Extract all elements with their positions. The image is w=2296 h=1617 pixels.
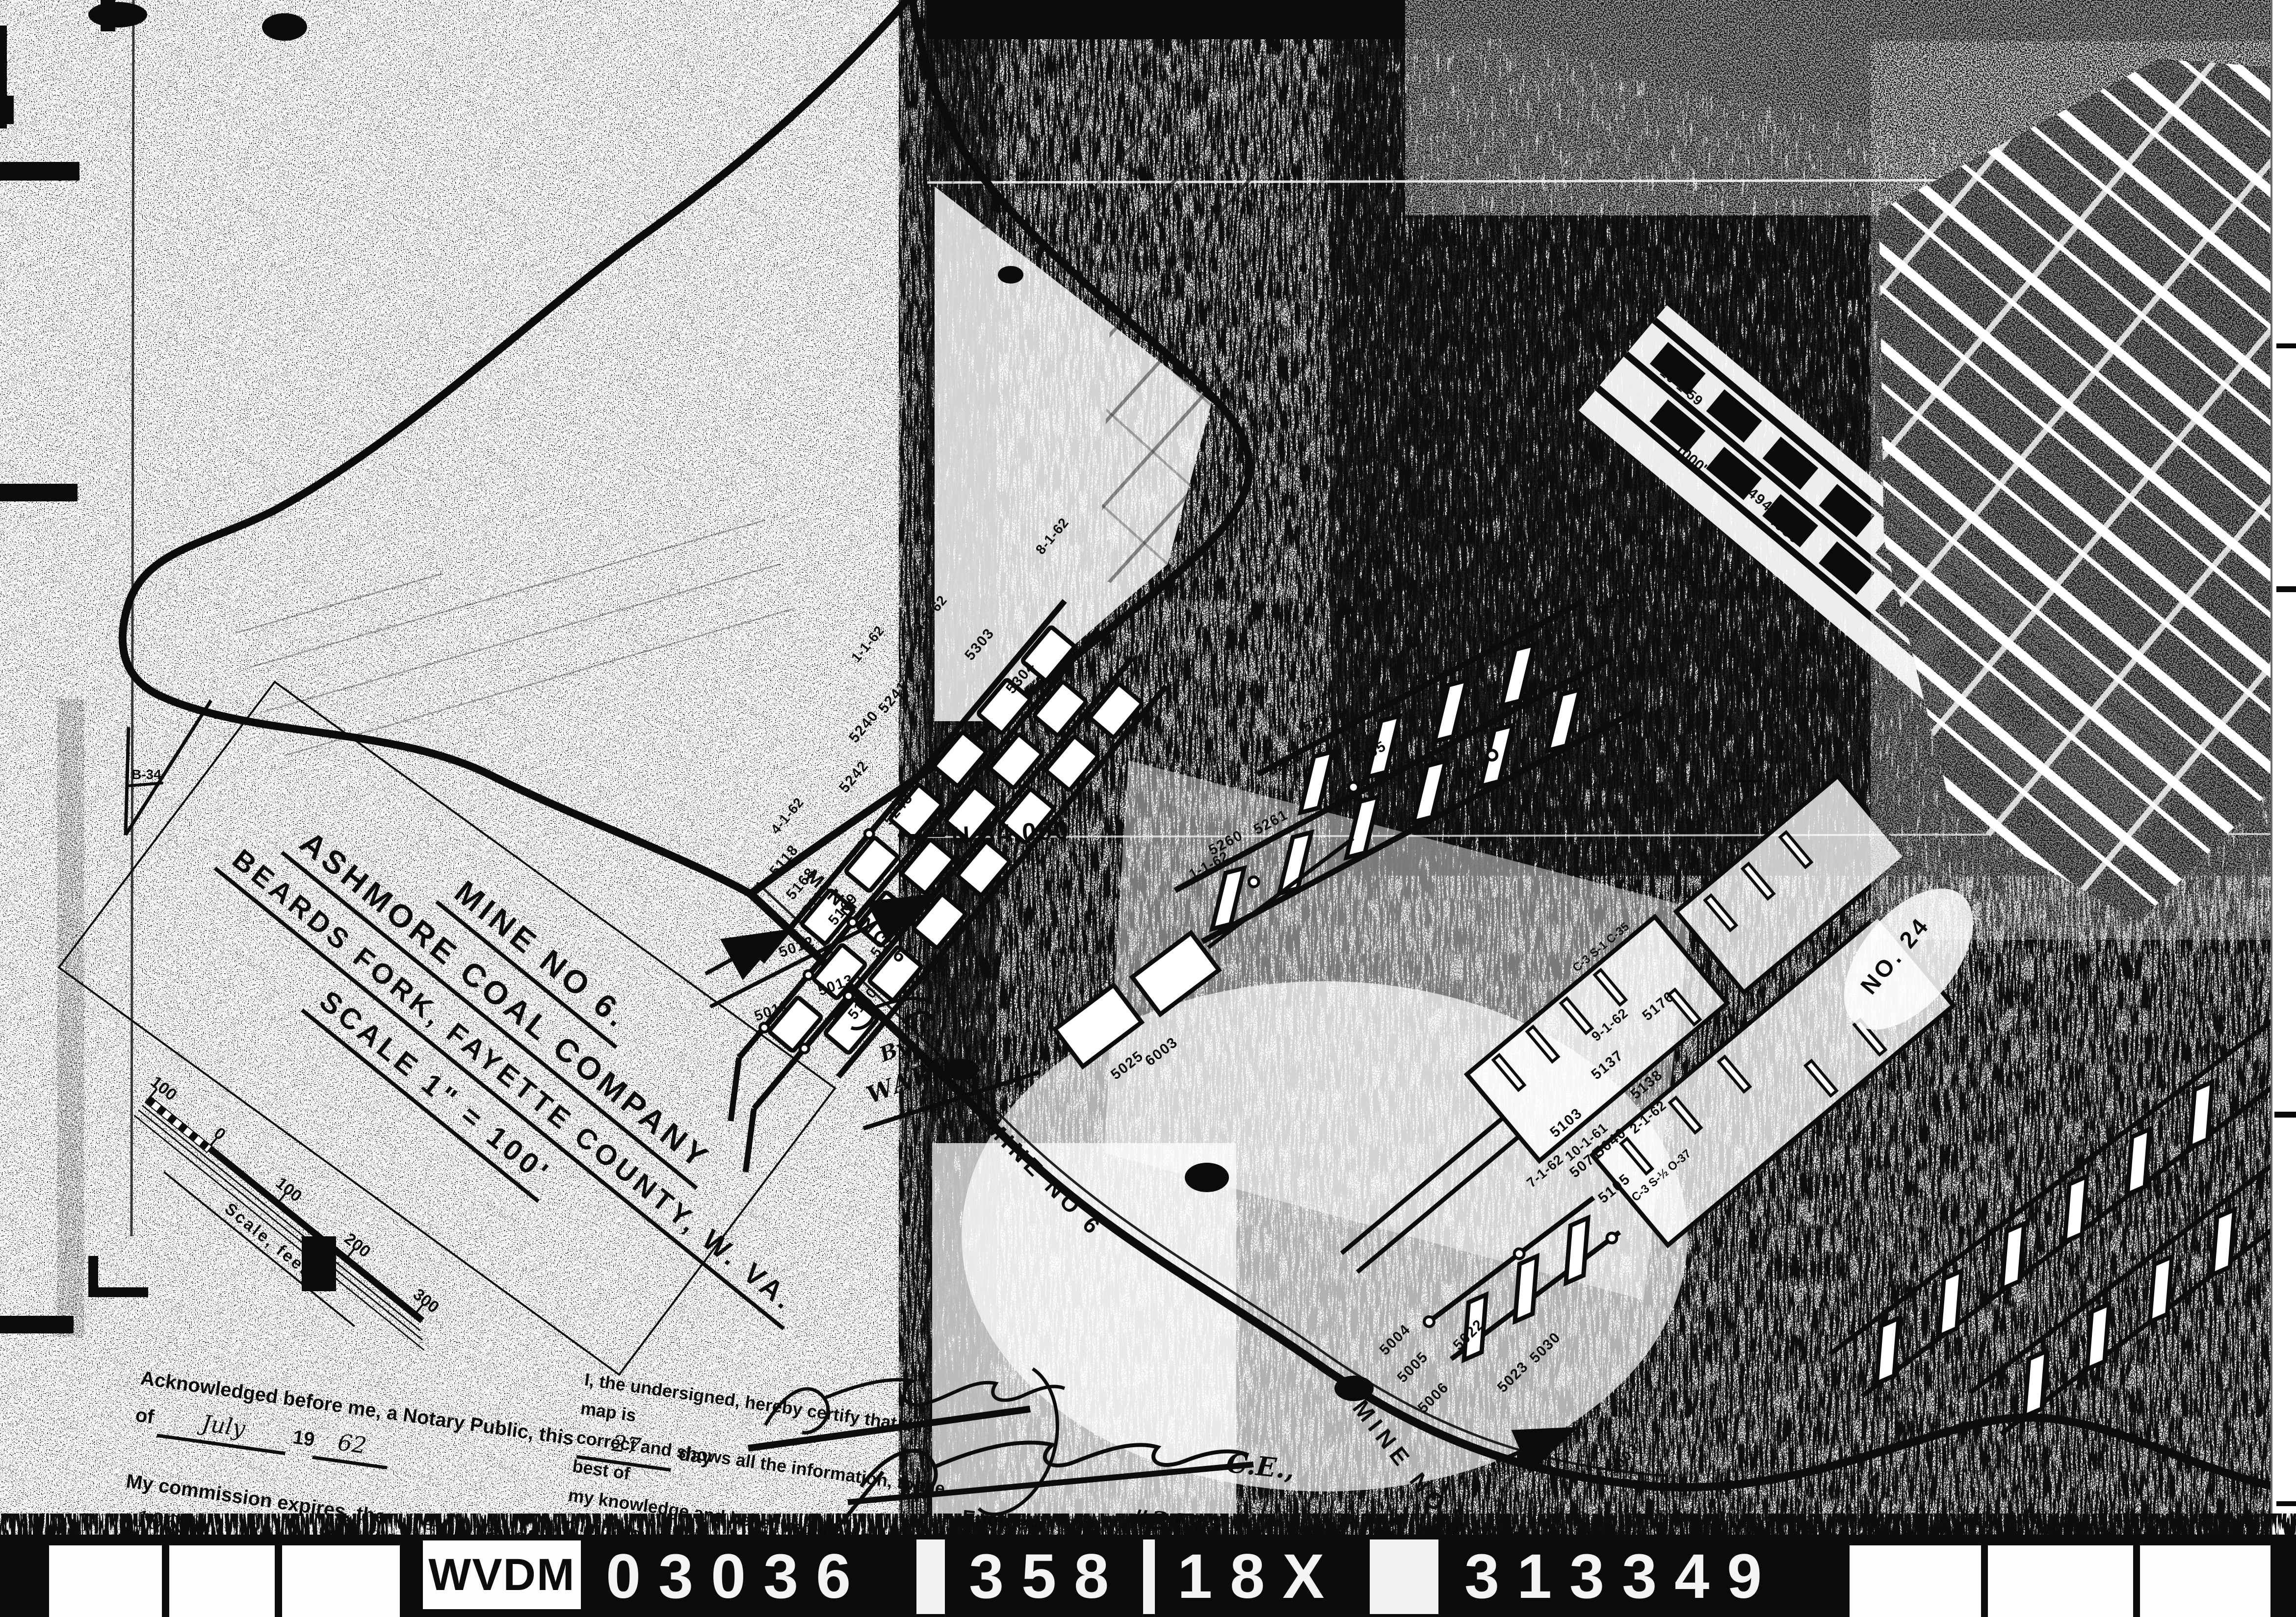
- code-03036: 03036: [606, 1538, 868, 1616]
- speckle-column: [58, 711, 83, 1325]
- benchmark-label: B-34: [131, 767, 161, 782]
- notary-text: 19: [291, 1426, 316, 1451]
- code-313349: 313349: [1464, 1538, 1779, 1616]
- film-frame-empty: [2140, 1545, 2270, 1617]
- frame-separator: [1143, 1539, 1155, 1614]
- right-film-margin: [2270, 0, 2296, 1536]
- film-strip: WVDM 03036 358 18X 313349: [0, 1535, 2296, 1617]
- scanned-mine-map: B-34: [0, 0, 2296, 1617]
- code-18x: 18X: [1177, 1538, 1342, 1616]
- frame-separator: [1370, 1539, 1438, 1614]
- film-frame-empty: [1988, 1545, 2133, 1617]
- notary-text: of: [134, 1404, 156, 1428]
- film-frame-empty: [49, 1545, 162, 1617]
- film-frame-empty: [1850, 1545, 1981, 1617]
- film-frame-empty: [169, 1545, 275, 1617]
- wvdm-box: WVDM: [423, 1540, 581, 1609]
- frame-separator: [916, 1539, 945, 1614]
- film-frame-empty: [282, 1545, 400, 1617]
- code-358: 358: [969, 1538, 1126, 1616]
